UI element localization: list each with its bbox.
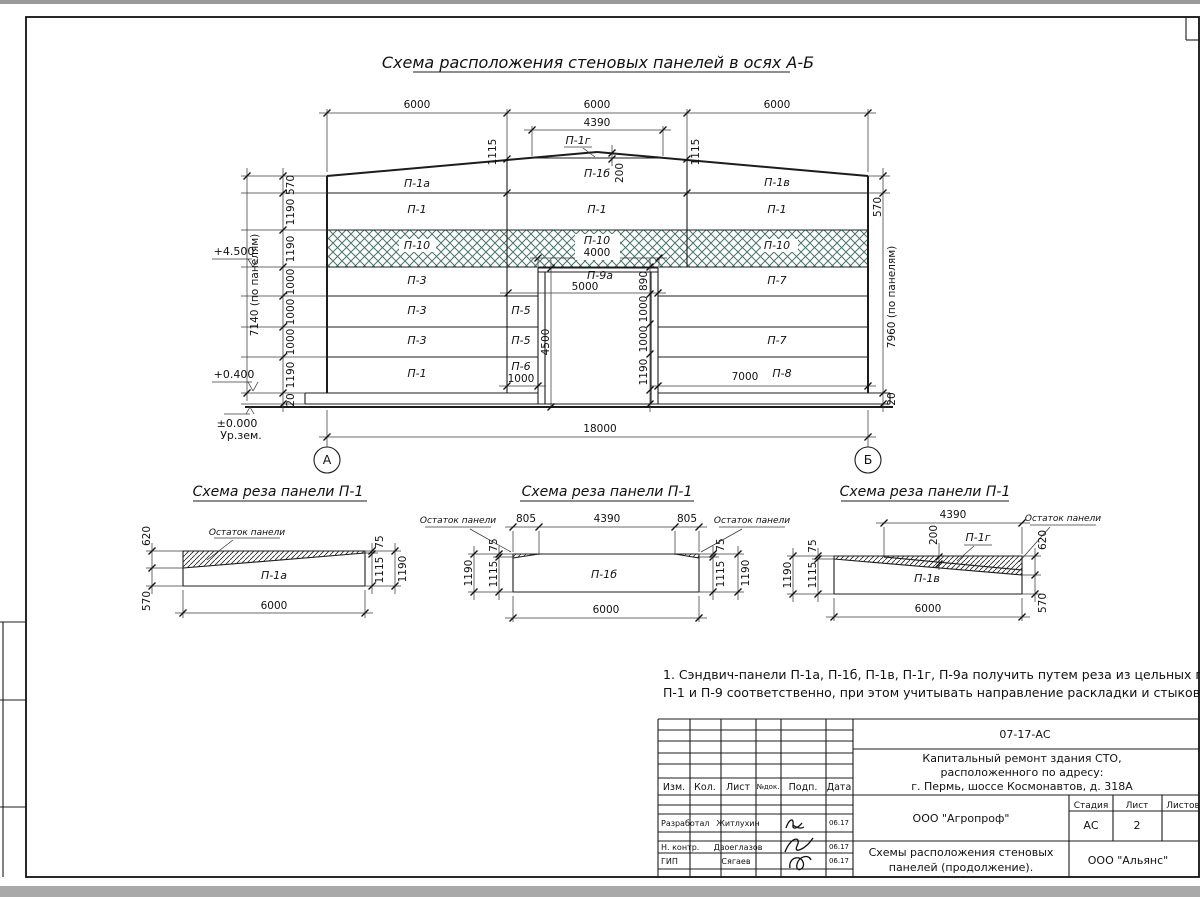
doc-code: 07-17-АС <box>999 728 1050 741</box>
panel-label: П-1б <box>591 568 617 581</box>
panel-label: П-1в <box>914 572 940 585</box>
tb-role: Н. контр. <box>661 843 699 852</box>
tb-col-header: Лист <box>726 782 751 793</box>
dim-label: 805 <box>516 513 536 525</box>
panel-label: П-3 <box>407 274 426 287</box>
tb-col-header: №док. <box>757 783 780 791</box>
scheme1-labels: Остаток панели П-1а 620 570 75 1115 1190… <box>141 526 409 612</box>
dim-label: 1190 <box>463 560 475 587</box>
dim-label: 1115 <box>487 139 499 166</box>
dim-label: 1190 <box>397 556 409 583</box>
dim-label: 200 <box>928 525 940 545</box>
panel-label: П-5 <box>511 334 530 347</box>
project-name: расположенного по адресу: <box>940 766 1103 779</box>
doc-title: панелей (продолжение). <box>889 861 1033 874</box>
main-title: Схема расположения стеновых панелей в ос… <box>382 53 814 72</box>
tb-date: 06.17 <box>829 857 849 865</box>
drawing-line <box>253 382 258 391</box>
dim-label: 75 <box>715 538 727 551</box>
drawing-line <box>597 152 868 176</box>
panel-label: П-6 <box>511 360 530 373</box>
scheme2-labels: Остаток панели Остаток панели П-1б 805 4… <box>420 513 790 616</box>
drawing-linework <box>0 17 1199 877</box>
project-name: г. Пермь, шоссе Космонавтов, д. 318А <box>911 780 1133 793</box>
dim-label: 1000 <box>285 299 297 326</box>
remnant-label: Остаток панели <box>420 516 496 526</box>
tb-role: Разработал <box>661 819 709 828</box>
dim-label: 6000 <box>584 99 611 111</box>
stage-value: АС <box>1083 819 1099 832</box>
dim-label: 1000 <box>508 373 535 385</box>
signature-1 <box>786 820 804 828</box>
stage-label: Стадия <box>1074 801 1109 811</box>
panel-label: П-1г <box>565 134 590 147</box>
tb-name: Двоеглазов <box>714 843 763 852</box>
panel-label: П-8 <box>772 367 791 380</box>
firm-name: ООО "Альянс" <box>1088 854 1169 867</box>
dim-label: 1000 <box>638 326 650 353</box>
dim-label: 1000 <box>285 269 297 296</box>
dim-label: 890 <box>638 271 650 291</box>
scheme2-title: Схема реза панели П-1 <box>522 484 693 500</box>
panel-label: П-10 <box>584 234 610 247</box>
sheet-value: 2 <box>1134 819 1141 832</box>
dim-label: 570 <box>872 197 884 217</box>
dim-label: 1115 <box>715 561 727 588</box>
drawing-canvas: Схема расположения стеновых панелей в ос… <box>0 0 1200 900</box>
tb-role: ГИП <box>661 857 678 866</box>
dim-label: 570 <box>141 591 153 611</box>
ground-label: Ур.зем. <box>220 429 262 442</box>
tb-date: 06.17 <box>829 843 849 851</box>
panel-label: П-3 <box>407 334 426 347</box>
drawing-line <box>327 152 597 176</box>
dim-label: 7000 <box>732 371 759 383</box>
org-name: ООО "Агропроф" <box>913 812 1010 825</box>
note-line1: 1. Сэндвич-панели П-1а, П-1б, П-1в, П-1г… <box>663 667 1200 682</box>
dim-label: 1190 <box>285 236 297 263</box>
panel-label: П-1 <box>587 203 606 216</box>
panel-label: П-1в <box>764 176 790 189</box>
tb-col-header: Изм. <box>663 782 685 793</box>
panel-label: П-5 <box>511 304 530 317</box>
dim-label: 18000 <box>583 423 616 435</box>
sheet-label: Лист <box>1126 801 1149 811</box>
dim-label: 1115 <box>488 561 500 588</box>
note-line2: П-1 и П-9 соответственно, при этом учиты… <box>663 685 1200 700</box>
level-mark: +4.500 <box>214 245 255 258</box>
panel-label: П-1б <box>584 167 610 180</box>
dim-label: 570 <box>1037 593 1049 613</box>
tb-date: 06.17 <box>829 819 849 827</box>
tb-name: Сягаев <box>721 857 750 866</box>
panel-label: П-1а <box>261 569 287 582</box>
dim-label: 4390 <box>584 117 611 129</box>
dim-label: 6000 <box>764 99 791 111</box>
dim-label: 1190 <box>285 199 297 226</box>
dim-label: 5000 <box>572 281 599 293</box>
dim-label: 4390 <box>940 509 967 521</box>
panel-label: П-1 <box>767 203 786 216</box>
scheme3-title: Схема реза панели П-1 <box>840 484 1011 500</box>
remnant-label: Остаток панели <box>1025 514 1101 524</box>
panel-label: П-7 <box>767 334 786 347</box>
cut-remnant-hatch-1 <box>183 551 365 568</box>
dim-label: 6000 <box>261 600 288 612</box>
dim-label: 6000 <box>915 603 942 615</box>
panel-label: П-10 <box>764 239 790 252</box>
dim-label: 7960 (по панелям) <box>886 246 898 348</box>
dim-label: 1190 <box>285 362 297 389</box>
dim-label: 20 <box>886 392 898 405</box>
panel-label: П-3 <box>407 304 426 317</box>
top-edge-strip <box>0 0 1200 4</box>
dim-label: 620 <box>1037 530 1049 550</box>
panel-label: П-1а <box>404 177 430 190</box>
tb-name: Житлухин <box>716 819 760 828</box>
dim-label: 570 <box>285 175 297 195</box>
dim-label: 620 <box>141 526 153 546</box>
dim-label: 1115 <box>807 562 819 589</box>
dim-label: 200 <box>614 163 626 183</box>
dim-label: 805 <box>677 513 697 525</box>
dim-label: 1190 <box>740 560 752 587</box>
dim-label: 4390 <box>594 513 621 525</box>
tb-col-header: Подп. <box>789 782 818 793</box>
dim-label: 75 <box>488 538 500 551</box>
drawing-line <box>250 407 254 414</box>
title-block: 07-17-АС Капитальный ремонт здания СТО, … <box>661 728 1200 874</box>
axis-label-a: А <box>323 452 332 467</box>
signature-2 <box>785 838 813 852</box>
tb-col-header: Кол. <box>694 782 716 793</box>
bottom-edge-strip <box>0 886 1200 897</box>
dim-label: 1115 <box>690 139 702 166</box>
dim-label: 1115 <box>374 557 386 584</box>
panel-label: П-10 <box>404 239 430 252</box>
axis-label-b: Б <box>864 452 873 467</box>
remnant-label: Остаток панели <box>714 516 790 526</box>
level-mark: +0.400 <box>214 368 255 381</box>
dim-label: 4000 <box>584 247 611 259</box>
sheets-label: Листов <box>1166 801 1200 811</box>
scheme1-title: Схема реза панели П-1 <box>193 484 364 500</box>
doc-title: Схемы расположения стеновых <box>869 846 1054 859</box>
dim-label: 1190 <box>638 359 650 386</box>
tb-col-header: Дата <box>827 782 852 793</box>
panel-label: П-9а <box>587 269 613 282</box>
sheet-frame <box>26 17 1199 877</box>
remnant-label: Остаток панели <box>209 528 285 538</box>
panel-label: П-1 <box>407 203 426 216</box>
drawing-sheet: Схема расположения стеновых панелей в ос… <box>0 0 1200 900</box>
panel-label: П-1 <box>407 367 426 380</box>
signature-3 <box>790 857 811 870</box>
drawing-line <box>246 407 250 414</box>
dim-label: 1000 <box>285 329 297 356</box>
panel-label: П-1г <box>965 531 990 544</box>
dim-label: 75 <box>374 535 386 548</box>
project-name: Капитальный ремонт здания СТО, <box>922 752 1121 765</box>
dim-label: 20 <box>285 393 297 406</box>
dim-label: 6000 <box>593 604 620 616</box>
cut-remnant-hatch-2r <box>675 554 699 558</box>
dim-label: 4500 <box>540 329 552 356</box>
cut-remnant-hatch-2l <box>513 554 539 558</box>
dim-label: 75 <box>807 539 819 552</box>
dim-label: 6000 <box>404 99 431 111</box>
panel-label: П-7 <box>767 274 786 287</box>
dim-label: 1000 <box>638 296 650 323</box>
dim-label: 1190 <box>782 562 794 589</box>
